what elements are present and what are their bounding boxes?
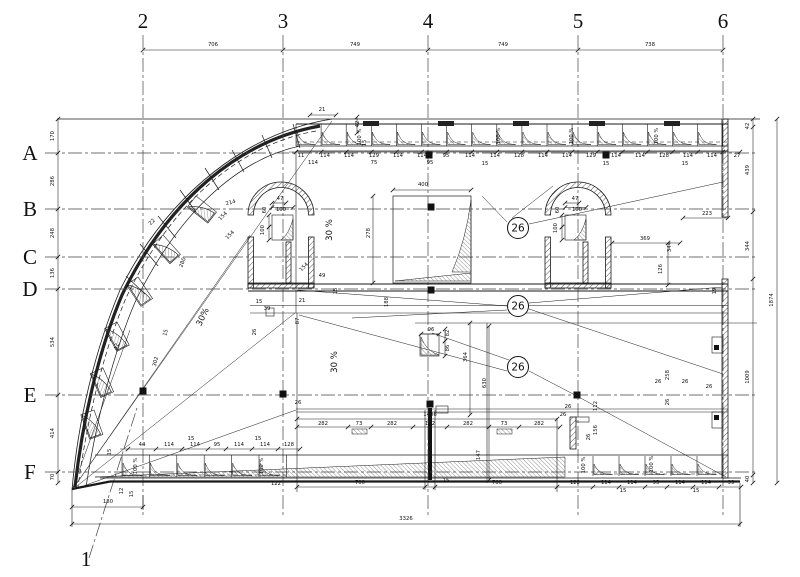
- dim-label: 114: [627, 480, 638, 486]
- dim-label: 400: [418, 182, 429, 188]
- dim-label: 122: [570, 480, 580, 486]
- dim-label: 15: [188, 436, 195, 442]
- dim-label: 126: [658, 263, 664, 274]
- dim-label: 26: [655, 379, 662, 385]
- dim-label: 1406: [423, 412, 437, 418]
- dim-label: 73: [356, 421, 363, 427]
- dim-label: 364: [463, 351, 469, 362]
- dim-label: 114: [164, 442, 175, 448]
- dim-label: 100: [572, 207, 583, 213]
- dim-label: 73: [501, 421, 508, 427]
- dim-label: 15: [107, 449, 113, 456]
- dim-label: 70: [50, 473, 56, 480]
- dim-label: 47: [277, 196, 284, 202]
- grid-col-label-2: 2: [138, 9, 149, 33]
- dim-label: 100 %: [654, 128, 660, 145]
- slope-label: 30 %: [325, 219, 335, 241]
- dim-label: 1009: [745, 370, 751, 383]
- dim-label: 15: [162, 329, 170, 337]
- dim-label: 114: [683, 153, 694, 159]
- dim-label: 114: [562, 153, 573, 159]
- dim-label: 154: [218, 210, 230, 222]
- dim-label: 44: [139, 442, 146, 448]
- walls: [95, 119, 728, 480]
- dimension-lines: [56, 48, 779, 526]
- dim-label: 114: [417, 153, 428, 159]
- dim-label: 114: [611, 153, 622, 159]
- dim-label: 15: [482, 161, 489, 167]
- lower-detail-square: [266, 308, 448, 413]
- facade-step-bays: [81, 196, 217, 439]
- dim-label: 15: [256, 299, 263, 305]
- dim-label: 223: [702, 211, 712, 217]
- dim-label: 100: [276, 207, 287, 213]
- grid-row-label-C: C: [23, 245, 37, 269]
- dim-label: 26: [682, 379, 689, 385]
- dim-label: 15: [682, 161, 689, 167]
- dim-label: 100: [553, 222, 559, 233]
- dim-label: 282: [534, 421, 544, 427]
- dim-label: 129: [369, 153, 379, 159]
- dim-label: 147: [476, 450, 482, 460]
- dim-label: 706: [208, 42, 219, 48]
- callout-number: 26: [511, 301, 525, 313]
- dim-label: 114: [308, 160, 319, 166]
- dim-label: 248: [50, 227, 56, 238]
- dim-label: 280: [179, 256, 188, 268]
- dim-label: 180: [103, 499, 114, 505]
- dim-label: 15: [362, 140, 368, 147]
- dim-label: 738: [645, 42, 656, 48]
- dim-label: 114: [601, 480, 612, 486]
- slope-label: 30%: [195, 306, 212, 327]
- floor-plan-drawing: 234561ABCDEF7067497497381702862481365344…: [0, 0, 800, 577]
- dim-label: 114: [701, 480, 712, 486]
- dim-label: 21: [319, 107, 326, 113]
- dim-label: 114: [344, 153, 355, 159]
- dim-label: 156: [593, 424, 599, 435]
- dim-label: 86: [445, 344, 451, 351]
- dim-label: 114: [635, 153, 646, 159]
- dim-label: 15: [693, 488, 700, 494]
- dim-label: 129: [586, 153, 596, 159]
- dim-label: 282: [463, 421, 473, 427]
- dim-label: 27: [734, 153, 741, 159]
- dim-label: 749: [350, 42, 360, 48]
- bay-cells: [122, 121, 723, 477]
- dim-label: 15: [129, 491, 135, 498]
- dim-label: 100 %: [133, 458, 139, 475]
- dim-label: 96: [428, 327, 435, 333]
- dim-label: 114: [190, 442, 201, 448]
- dim-label: 60: [262, 206, 268, 213]
- dim-label: 42: [355, 121, 361, 128]
- dim-label: 99: [728, 480, 735, 486]
- dim-label: 26: [586, 433, 592, 440]
- callout-number: 26: [511, 362, 525, 374]
- grid-row-label-F: F: [24, 460, 36, 484]
- dim-label: 282: [318, 421, 328, 427]
- dim-label: 749: [498, 42, 508, 48]
- dim-label: 128: [659, 153, 670, 159]
- dim-label: 128: [514, 153, 525, 159]
- dim-label: 114: [707, 153, 718, 159]
- dim-label: 114: [393, 153, 404, 159]
- dim-label: 75: [371, 160, 378, 166]
- dim-label: 15: [255, 436, 262, 442]
- dim-label: 114: [260, 442, 271, 448]
- dim-label: 22: [148, 218, 157, 227]
- dim-label: 87: [295, 318, 301, 325]
- dim-label: 154: [225, 229, 237, 241]
- dim-label: 40: [745, 475, 751, 482]
- dim-label: 82: [445, 330, 451, 337]
- dim-label: 21: [299, 298, 306, 304]
- grid-row-label-E: E: [24, 383, 37, 407]
- dim-label: 439: [745, 165, 751, 175]
- dim-label: 26: [252, 328, 258, 335]
- grid-row-label-A: A: [22, 141, 38, 165]
- dim-label: 282: [387, 421, 397, 427]
- dim-label: 100 %: [569, 128, 575, 145]
- dim-label: 3326: [399, 516, 413, 522]
- dim-label: 95: [214, 442, 221, 448]
- dim-label: 344: [667, 241, 673, 252]
- grid-row-label-B: B: [23, 197, 37, 221]
- dim-label: 170: [50, 130, 56, 141]
- dim-label: 26: [565, 404, 572, 410]
- dim-label: 630: [482, 377, 488, 388]
- grid-lines: [45, 35, 758, 558]
- dim-label: 15: [333, 288, 339, 295]
- dim-label: 100 %: [649, 456, 655, 473]
- dim-label: 15: [443, 478, 450, 484]
- dim-label: 26: [706, 384, 713, 390]
- floor-plan-page: 234561ABCDEF7067497497381702862481365344…: [0, 0, 800, 577]
- dim-label: 700: [355, 480, 366, 486]
- dim-label: 369: [640, 236, 650, 242]
- dim-label: 534: [50, 336, 56, 347]
- dim-label: 114: [490, 153, 501, 159]
- dim-label: 136: [50, 267, 56, 278]
- dim-label: 112: [593, 401, 599, 411]
- dim-label: 286: [50, 175, 56, 186]
- dim-label: 114: [234, 442, 245, 448]
- dim-label: 49: [319, 273, 326, 279]
- grid-col-label-3: 3: [278, 9, 289, 33]
- dim-label: 60: [555, 206, 561, 213]
- dim-label: 100: [260, 224, 266, 235]
- dim-label: 1874: [769, 293, 775, 307]
- column-markers: [140, 152, 610, 435]
- callout-number: 26: [511, 223, 525, 235]
- dim-label: 114: [320, 153, 331, 159]
- dim-label: 12: [119, 488, 125, 495]
- dim-label: 95: [653, 480, 660, 486]
- dim-label: 47: [572, 196, 579, 202]
- dim-label: 95: [443, 153, 450, 159]
- grid-col-label-4: 4: [423, 9, 434, 33]
- dim-label: 700: [492, 480, 503, 486]
- dim-label: 278: [366, 227, 372, 238]
- dim-label: 100 %: [581, 457, 587, 474]
- dim-label: 102: [425, 421, 435, 427]
- slope-label: 30 %: [330, 351, 340, 373]
- dim-label: 19: [712, 288, 718, 295]
- grid-row-label-D: D: [22, 277, 37, 301]
- dim-label: 100 %: [496, 128, 502, 145]
- dim-label: 114: [675, 480, 686, 486]
- dim-label: 114: [538, 153, 549, 159]
- dim-label: 95: [427, 160, 434, 166]
- grid-col-label-1: 1: [81, 547, 92, 571]
- dim-label: 26: [560, 412, 567, 418]
- dim-label: 128: [284, 442, 295, 448]
- dim-label: 214: [225, 199, 237, 208]
- dim-label: 26: [665, 398, 671, 405]
- dim-label: 188: [384, 296, 390, 307]
- dim-label: 42: [745, 123, 751, 130]
- dim-label: 414: [50, 427, 56, 438]
- dim-label: 15: [603, 161, 610, 167]
- grid-col-label-6: 6: [718, 9, 729, 33]
- dim-label: 15: [620, 488, 627, 494]
- dim-label: 258: [665, 369, 671, 380]
- dim-label: 344: [745, 240, 751, 251]
- dim-label: 39: [264, 306, 271, 312]
- dim-label: 26: [295, 400, 302, 406]
- dim-label: 100 %: [259, 458, 265, 475]
- dim-label: 11: [298, 153, 305, 159]
- dim-label: 114: [465, 153, 476, 159]
- dim-label: 122: [271, 481, 281, 487]
- grid-col-label-5: 5: [573, 9, 584, 33]
